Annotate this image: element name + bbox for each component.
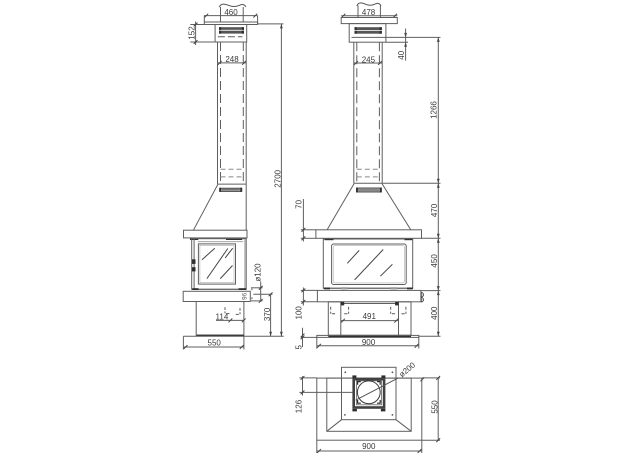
svg-text:2700: 2700 — [273, 169, 282, 187]
svg-text:478: 478 — [362, 8, 376, 17]
svg-text:1266: 1266 — [429, 101, 438, 119]
svg-text:900: 900 — [362, 442, 376, 451]
svg-text:100: 100 — [294, 306, 303, 320]
svg-text:5: 5 — [294, 345, 303, 350]
svg-text:40: 40 — [397, 50, 406, 59]
svg-text:491: 491 — [363, 312, 377, 321]
svg-text:245: 245 — [362, 55, 376, 64]
svg-text:550: 550 — [208, 338, 222, 347]
svg-text:460: 460 — [224, 8, 238, 17]
svg-text:900: 900 — [362, 338, 376, 347]
svg-text:450: 450 — [430, 254, 439, 268]
svg-text:ø120: ø120 — [254, 263, 263, 282]
svg-text:114: 114 — [216, 313, 229, 322]
svg-text:126: 126 — [294, 399, 303, 413]
svg-text:370: 370 — [263, 307, 272, 321]
svg-text:96: 96 — [242, 292, 249, 300]
svg-text:248: 248 — [225, 55, 239, 64]
svg-text:470: 470 — [430, 203, 439, 217]
svg-text:70: 70 — [294, 199, 303, 208]
svg-text:152: 152 — [187, 26, 196, 40]
svg-text:550: 550 — [430, 400, 439, 414]
svg-text:400: 400 — [430, 306, 439, 320]
